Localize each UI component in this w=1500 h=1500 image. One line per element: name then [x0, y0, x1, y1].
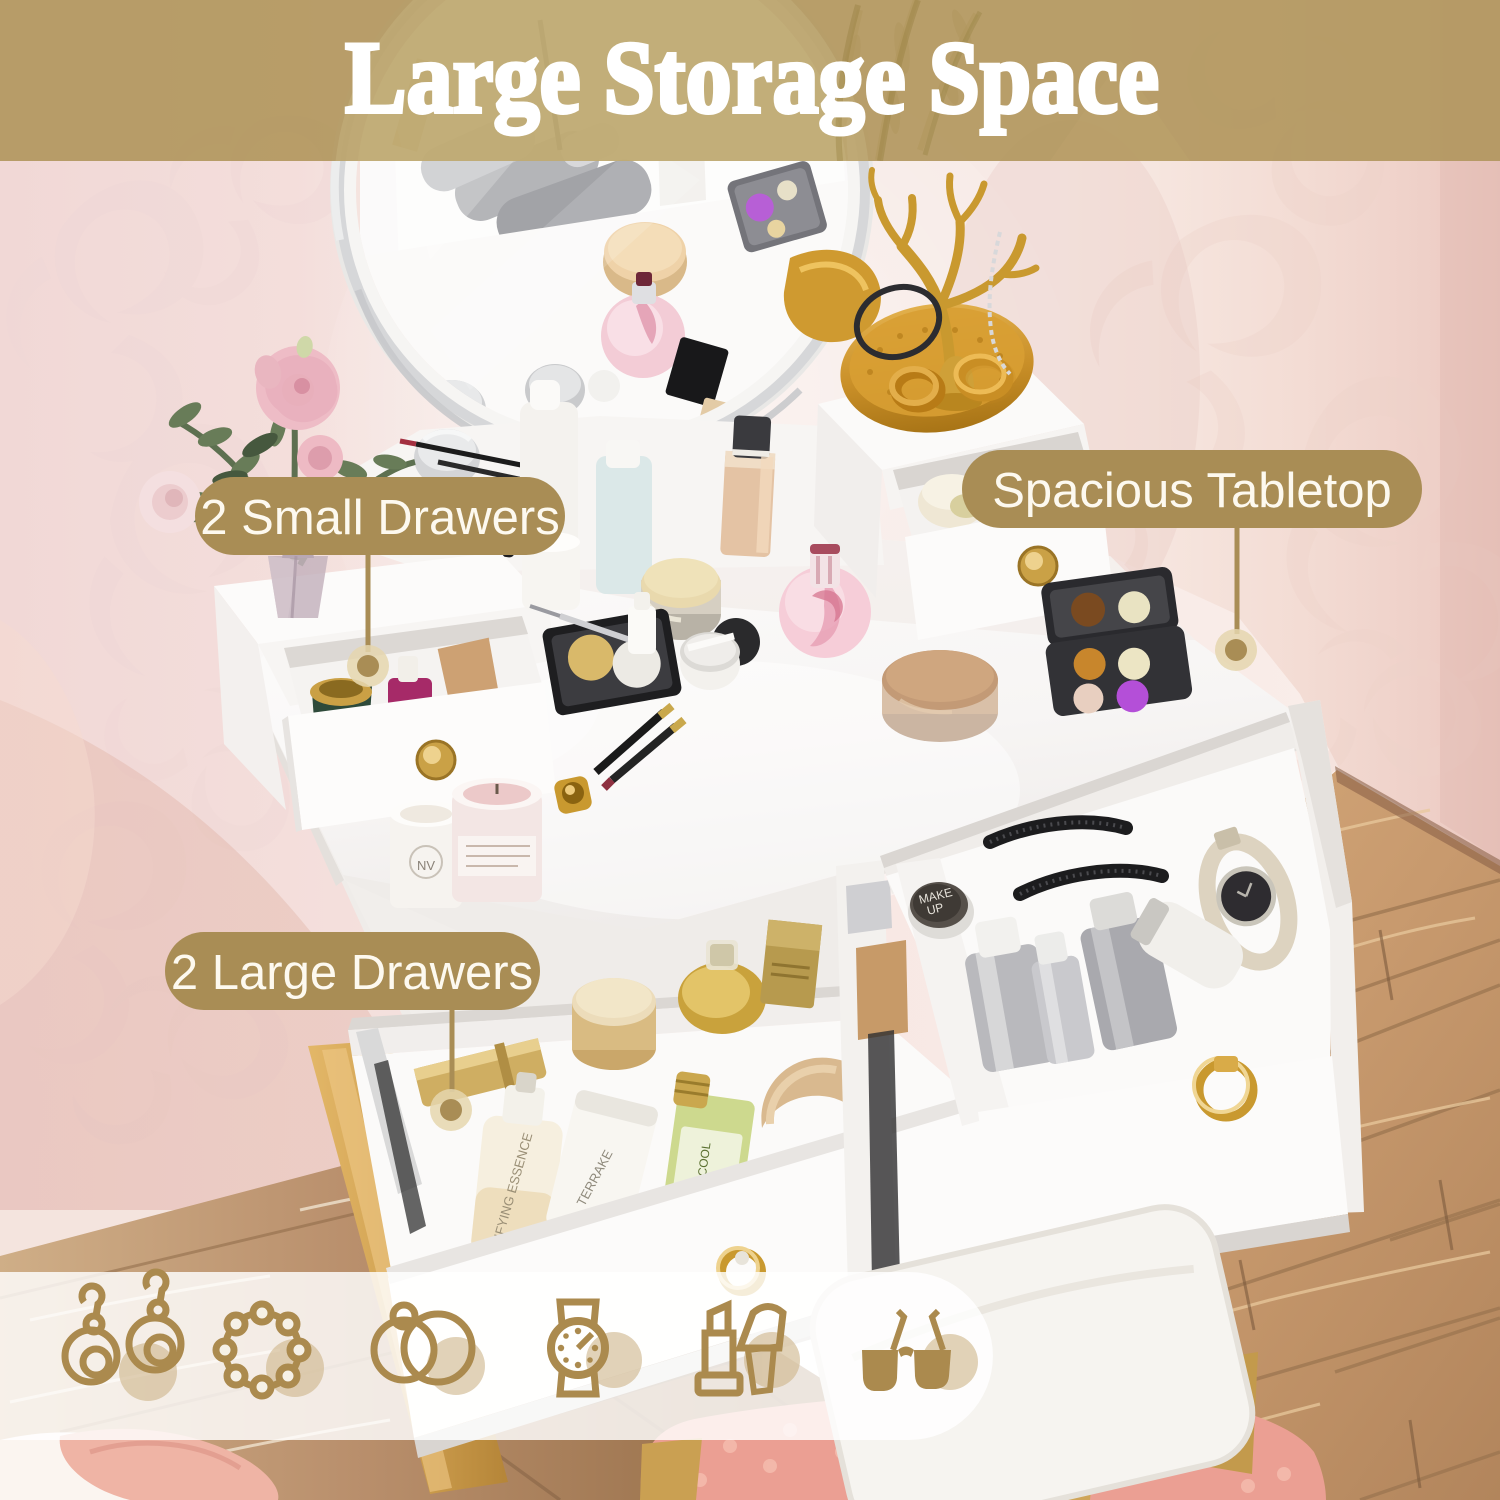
- svg-text:2 Large Drawers: 2 Large Drawers: [171, 946, 533, 1000]
- svg-text:Large Storage Space: Large Storage Space: [345, 21, 1159, 135]
- svg-text:NV: NV: [417, 858, 435, 873]
- svg-text:2 Small Drawers: 2 Small Drawers: [200, 491, 559, 545]
- svg-text:Spacious Tabletop: Spacious Tabletop: [992, 464, 1392, 518]
